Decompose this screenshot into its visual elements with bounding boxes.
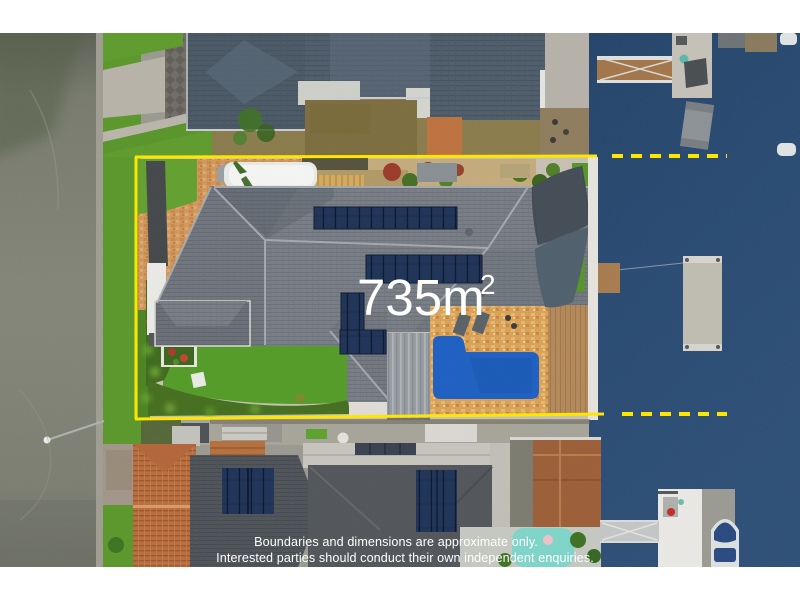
- svg-text:Interested parties should cond: Interested parties should conduct their …: [216, 551, 594, 565]
- svg-text:735m: 735m: [357, 269, 485, 326]
- svg-text:2: 2: [480, 269, 496, 300]
- svg-text:Boundaries and dimensions are: Boundaries and dimensions are approximat…: [254, 535, 538, 549]
